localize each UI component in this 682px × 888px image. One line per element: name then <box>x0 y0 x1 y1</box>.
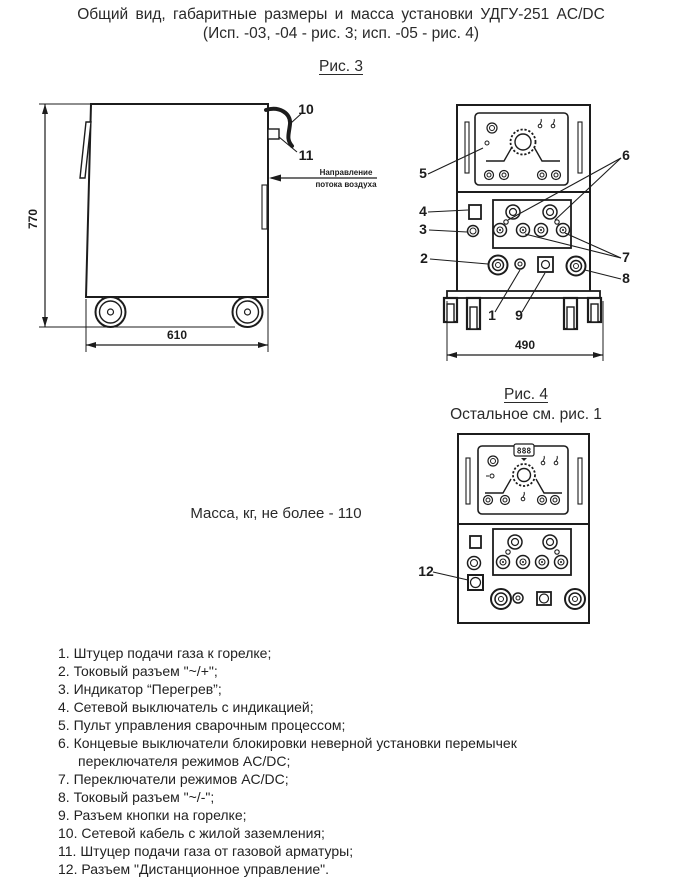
remote-control-connector <box>468 575 483 590</box>
fig4-front-view-drawing: 888 <box>415 430 682 630</box>
wheel-left <box>96 297 126 327</box>
callout-7: 7 <box>622 249 630 265</box>
callout-5: 5 <box>419 165 427 181</box>
control-panel: 888 <box>466 444 582 514</box>
overheat-indicator <box>468 226 479 237</box>
callout-4: 4 <box>419 203 427 219</box>
gas-outlet-fitting <box>515 259 525 269</box>
legend-item-9: 9. Разъем кнопки на горелке; <box>58 806 558 824</box>
vent-slat-right <box>578 458 582 504</box>
legend-list: 1. Штуцер подачи газа к горелке; 2. Токо… <box>58 644 558 878</box>
airflow-label-1: Направление <box>320 168 373 177</box>
fig3-caption: Рис. 3 <box>0 58 682 76</box>
gas-inlet-fitting <box>268 129 279 139</box>
callout-6: 6 <box>622 147 630 163</box>
fig4-caption-block: Рис. 4 Остальное см. рис. 1 <box>395 385 657 425</box>
legend-item-5: 5. Пульт управления сварочным процессом; <box>58 716 558 734</box>
legend-item-10: 10. Сетевой кабель с жилой заземления; <box>58 824 558 842</box>
mode-switch-panel <box>493 529 571 575</box>
fig4-caption: Рис. 4 <box>504 386 548 403</box>
display-value: 888 <box>517 447 532 456</box>
callout-9: 9 <box>515 307 523 323</box>
mains-cable <box>266 109 292 146</box>
dim-490-label: 490 <box>515 338 535 352</box>
airflow-label-2: потока воздуха <box>315 180 377 189</box>
callout-1: 1 <box>488 307 496 323</box>
fig3-front-view-drawing: 490 5 4 3 2 6 7 8 1 9 <box>415 95 682 380</box>
airflow-annotation: Направление потока воздуха <box>269 168 377 189</box>
page-title: Общий вид, габаритные размеры и масса ус… <box>0 5 682 43</box>
manual-page: Общий вид, габаритные размеры и масса ус… <box>0 0 682 888</box>
dim-610-label: 610 <box>167 328 187 342</box>
fig4-note: Остальное см. рис. 1 <box>395 405 657 425</box>
legend-item-12: 12. Разъем "Дистанционное управление". <box>58 860 558 878</box>
legend-item-6: 6. Концевые выключатели блокировки невер… <box>58 734 558 770</box>
vent-slat-right <box>578 122 582 173</box>
vent-slat-left <box>466 458 470 504</box>
current-connector-plus <box>491 589 511 609</box>
callout-2: 2 <box>420 250 428 266</box>
wheel-right <box>233 297 263 327</box>
legend-item-3: 3. Индикатор “Перегрев”; <box>58 680 558 698</box>
airflow-arrow-icon <box>269 175 281 182</box>
legend-item-2: 2. Токовый разъем "~/+"; <box>58 662 558 680</box>
overheat-indicator <box>468 557 481 570</box>
callout-10: 10 <box>298 101 314 117</box>
current-connector-plus <box>489 256 508 275</box>
vent-slat-left <box>465 122 469 173</box>
title-line-1: Общий вид, габаритные размеры и масса ус… <box>0 5 682 24</box>
legend-item-7: 7. Переключатели режимов AC/DC; <box>58 770 558 788</box>
callout-12: 12 <box>418 563 434 579</box>
legend-item-1: 1. Штуцер подачи газа к горелке; <box>58 644 558 662</box>
torch-button-connector <box>538 257 553 272</box>
callout-3: 3 <box>419 221 427 237</box>
legend-item-4: 4. Сетевой выключатель с индикацией; <box>58 698 558 716</box>
gas-outlet-fitting <box>513 593 523 603</box>
mass-note: Масса, кг, не более - 110 <box>100 505 452 522</box>
fig3-side-view-drawing: 770 610 10 11 Направление потока воздуха <box>25 88 385 378</box>
torch-button-connector <box>537 592 551 605</box>
legend-item-11: 11. Штуцер подачи газа от газовой армату… <box>58 842 558 860</box>
power-switch <box>469 205 481 219</box>
dim-770-label: 770 <box>26 209 40 229</box>
control-panel <box>465 113 582 185</box>
callout-8: 8 <box>622 270 630 286</box>
rear-vent-strip <box>262 185 267 229</box>
legend-item-8: 8. Токовый разъем "~/-"; <box>58 788 558 806</box>
title-line-2: (Исп. -03, -04 - рис. 3; исп. -05 - рис.… <box>0 24 682 43</box>
power-switch <box>470 536 481 548</box>
current-connector-minus <box>565 589 585 609</box>
current-connector-minus <box>567 257 586 276</box>
cabinet-side-outline <box>86 104 268 297</box>
callout-11: 11 <box>299 147 314 163</box>
